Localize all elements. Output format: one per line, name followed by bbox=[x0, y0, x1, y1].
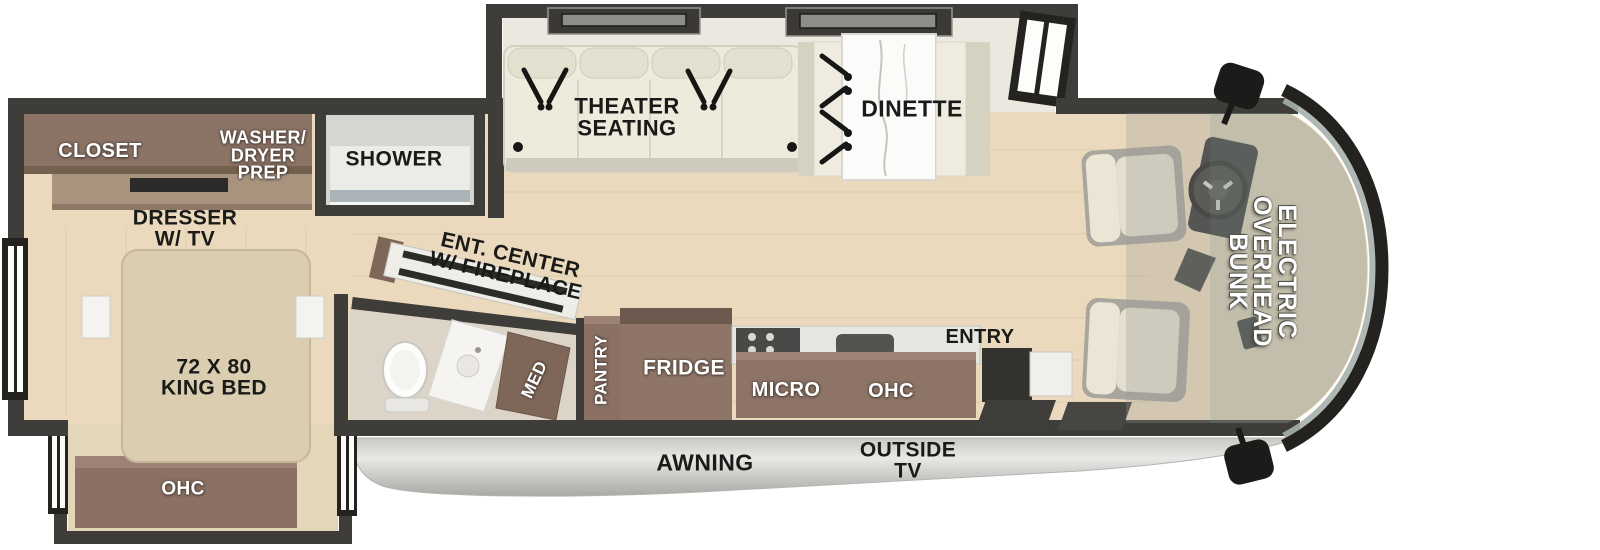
entry-step-1 bbox=[976, 400, 1056, 428]
slideout-window-right bbox=[337, 430, 357, 516]
fridge-cabinet bbox=[620, 308, 732, 420]
king-bed bbox=[122, 250, 310, 462]
entry-step-2 bbox=[1058, 402, 1132, 430]
rv-floorplan: CLOSET WASHER/ DRYER PREP SHOWER DRESSER… bbox=[0, 0, 1600, 550]
cab-shade bbox=[1126, 113, 1210, 423]
pantry-cabinet bbox=[584, 316, 620, 420]
tv bbox=[130, 178, 228, 192]
bedroom-closet bbox=[24, 114, 312, 174]
roof-vent-left bbox=[548, 8, 700, 34]
nightstand-right bbox=[296, 296, 324, 338]
bedroom-dresser bbox=[52, 174, 312, 210]
toilet bbox=[383, 342, 429, 412]
micro-ohc-cabinet bbox=[736, 352, 976, 418]
shower-pan bbox=[330, 190, 470, 203]
awning-band bbox=[352, 438, 1296, 496]
roof-vent-right bbox=[786, 8, 952, 36]
shower-room bbox=[315, 104, 485, 216]
slideout-window-left bbox=[48, 428, 68, 514]
floorplan-drawing bbox=[0, 0, 1600, 550]
bedroom-window bbox=[2, 238, 28, 400]
med-cabinet bbox=[496, 332, 570, 420]
nightstand-left bbox=[82, 296, 110, 338]
dinette-table bbox=[842, 34, 936, 180]
mirror-bottom bbox=[1222, 428, 1276, 487]
